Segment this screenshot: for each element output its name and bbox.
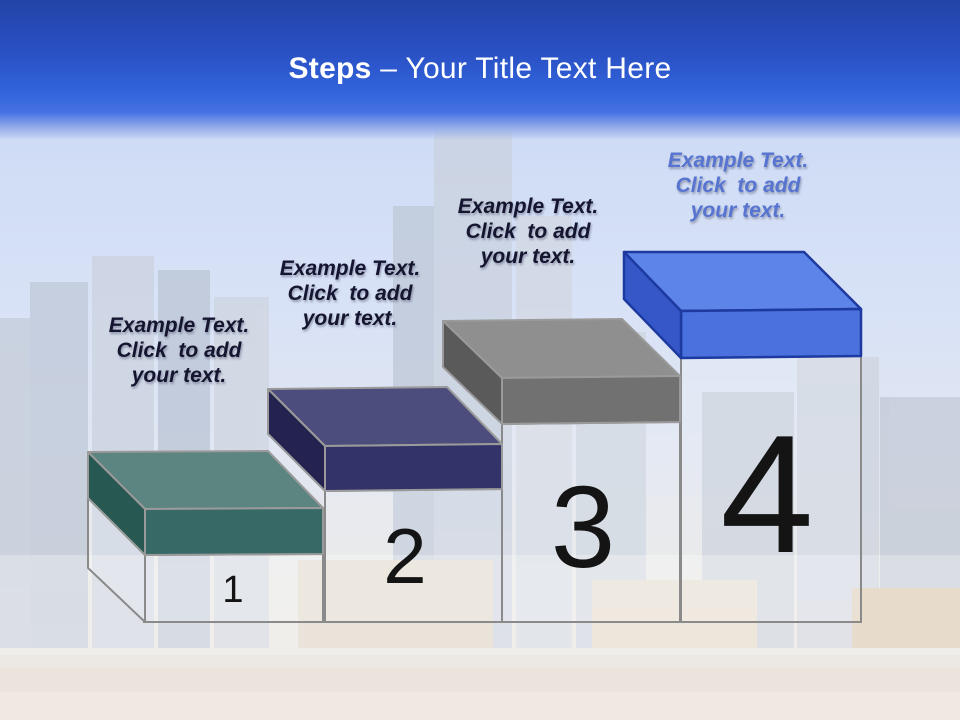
step-box-3-front-face: [502, 376, 680, 424]
step-label-2[interactable]: Example Text. Click to add your text.: [255, 256, 445, 331]
step-label-3[interactable]: Example Text. Click to add your text.: [433, 194, 623, 269]
step-number-2[interactable]: 2: [383, 517, 426, 595]
slide: Steps – Your Title Text Here: [0, 0, 960, 720]
step-box-4-front-face: [681, 309, 861, 358]
step-box-2-front-face: [325, 444, 502, 491]
step-label-1[interactable]: Example Text. Click to add your text.: [84, 313, 274, 388]
step-number-1[interactable]: 1: [222, 571, 243, 609]
step-box-1-front-face: [145, 508, 323, 555]
slide-title[interactable]: Steps – Your Title Text Here: [0, 52, 960, 86]
step-number-4[interactable]: 4: [720, 410, 813, 578]
step-label-4[interactable]: Example Text. Click to add your text.: [643, 148, 833, 223]
step-box-2[interactable]: [268, 387, 502, 491]
slide-title-keyword: Steps: [288, 52, 371, 85]
step-box-4[interactable]: [624, 252, 861, 358]
slide-title-rest: – Your Title Text Here: [372, 52, 672, 85]
step-box-3[interactable]: [443, 319, 680, 424]
step-number-3[interactable]: 3: [551, 469, 616, 585]
